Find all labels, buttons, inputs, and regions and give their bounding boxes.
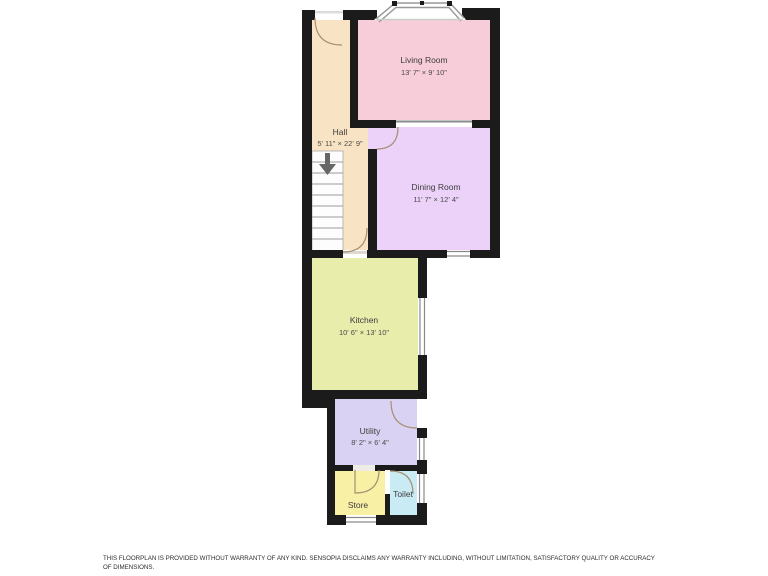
store-window xyxy=(346,515,376,525)
kitchen-window xyxy=(418,298,427,355)
living-room-label: Living Room xyxy=(400,55,447,65)
store-label: Store xyxy=(348,500,369,510)
floorplan-drawing: Living Room 13' 7" × 9' 10" Hall 5' 11" … xyxy=(0,0,768,576)
stairs xyxy=(312,151,343,252)
kitchen-dims: 10' 6" × 13' 10" xyxy=(339,328,389,337)
kitchen-label: Kitchen xyxy=(350,315,379,325)
living-dining-opening xyxy=(396,120,472,127)
hall-dims: 5' 11" × 22' 9" xyxy=(317,139,363,148)
utility-window xyxy=(417,438,427,460)
living-room-dims: 13' 7" × 9' 10" xyxy=(401,68,447,77)
hall-label: Hall xyxy=(333,127,348,137)
utility-dims: 8' 2" × 6' 4" xyxy=(351,438,389,447)
room-fills xyxy=(310,16,492,517)
dining-room-dims: 11' 7" × 12' 4" xyxy=(413,195,459,204)
toilet-label: Toilet xyxy=(393,489,413,499)
utility-label: Utility xyxy=(360,426,382,436)
toilet-window xyxy=(417,474,427,503)
bay-window xyxy=(374,1,466,22)
dining-room-label: Dining Room xyxy=(411,182,460,192)
dining-window xyxy=(447,250,470,258)
disclaimer-text: THIS FLOORPLAN IS PROVIDED WITHOUT WARRA… xyxy=(103,555,665,572)
room-dining-door-gap xyxy=(368,126,377,149)
